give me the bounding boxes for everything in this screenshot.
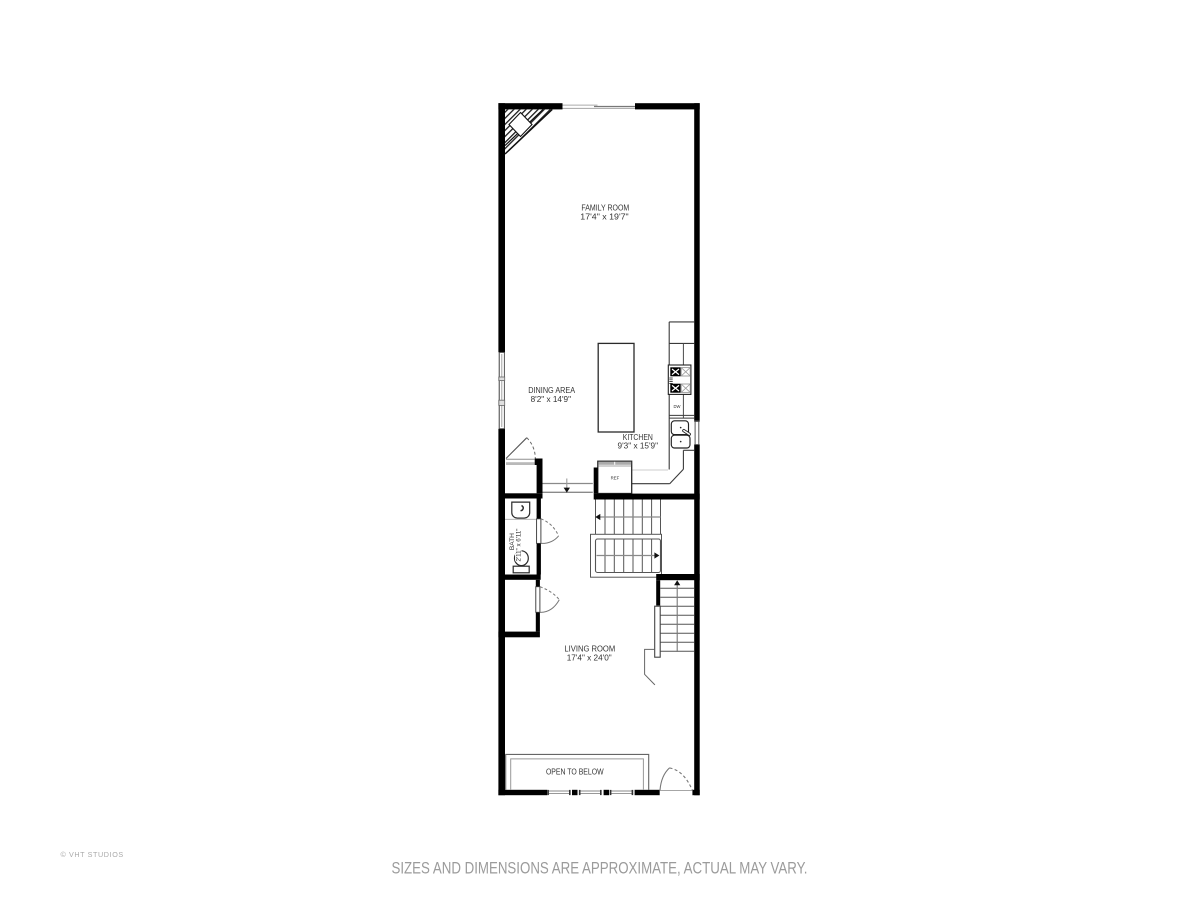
svg-text:2'11" x 6'11": 2'11" x 6'11" xyxy=(515,528,522,561)
svg-text:9'3" x 15'9": 9'3" x 15'9" xyxy=(618,440,659,450)
svg-text:8'2" x 14'9": 8'2" x 14'9" xyxy=(531,394,571,404)
svg-text:OPEN TO BELOW: OPEN TO BELOW xyxy=(546,767,604,777)
svg-text:© VHT STUDIOS: © VHT STUDIOS xyxy=(61,850,124,859)
svg-text:17'4" x 19'7": 17'4" x 19'7" xyxy=(580,211,628,221)
svg-text:REF: REF xyxy=(611,475,620,480)
svg-text:SIZES AND DIMENSIONS ARE APPRO: SIZES AND DIMENSIONS ARE APPROXIMATE, AC… xyxy=(392,860,808,878)
svg-text:DW: DW xyxy=(674,404,681,409)
svg-text:17'4" x 24'0": 17'4" x 24'0" xyxy=(567,652,612,662)
